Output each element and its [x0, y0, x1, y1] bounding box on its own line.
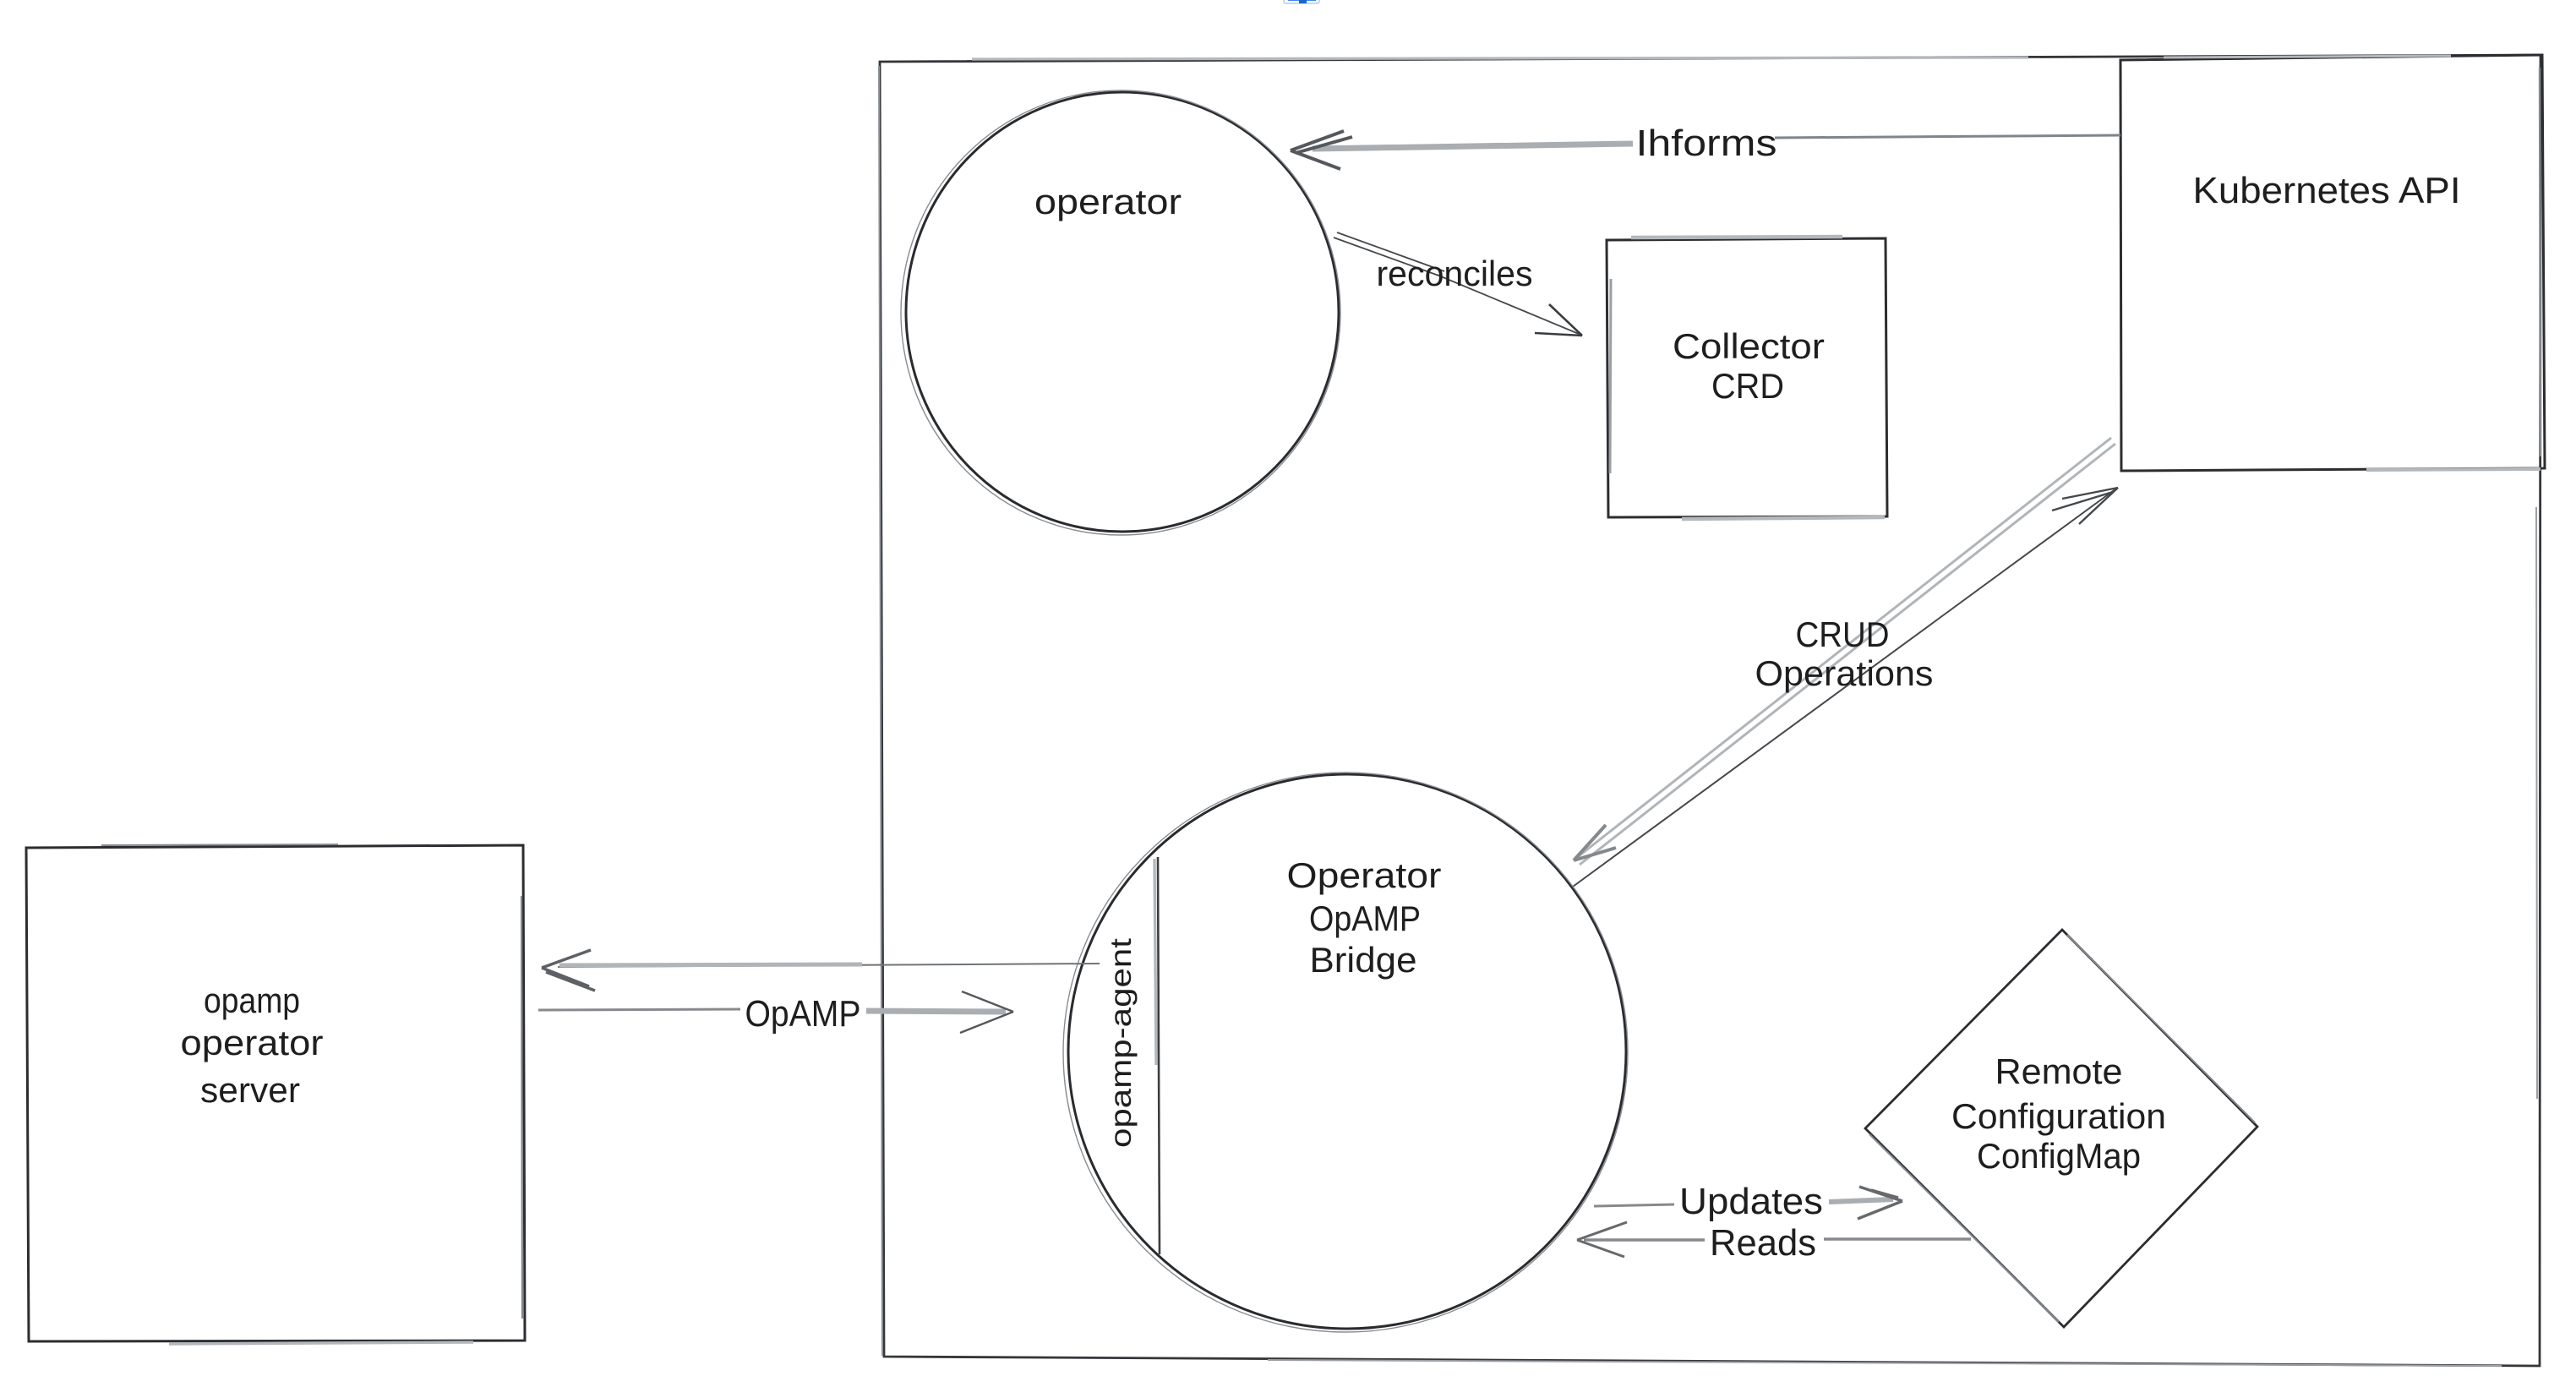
svg-text:Remote: Remote — [1995, 1051, 2123, 1091]
svg-text:Operations: Operations — [1755, 653, 1934, 693]
svg-text:Bridge: Bridge — [1310, 940, 1417, 980]
svg-text:operator: operator — [181, 1023, 324, 1062]
svg-text:Operator: Operator — [1287, 855, 1442, 895]
svg-text:CRUD: CRUD — [1796, 614, 1890, 654]
svg-text:operator: operator — [1034, 182, 1182, 221]
svg-text:ConfigMap: ConfigMap — [1977, 1136, 2141, 1176]
svg-text:reconciles: reconciles — [1377, 254, 1533, 293]
svg-text:Kubernetes API: Kubernetes API — [2193, 170, 2461, 211]
svg-text:Collector: Collector — [1673, 326, 1825, 366]
svg-text:Configuration: Configuration — [1951, 1096, 2166, 1136]
svg-text:opamp: opamp — [204, 980, 300, 1020]
svg-text:Updates: Updates — [1679, 1181, 1823, 1222]
svg-text:Reads: Reads — [1710, 1222, 1816, 1264]
svg-text:Ihforms: Ihforms — [1636, 123, 1777, 164]
svg-text:CRD: CRD — [1711, 366, 1784, 406]
svg-text:opamp-agent: opamp-agent — [1105, 938, 1138, 1148]
svg-text:OpAMP: OpAMP — [745, 993, 861, 1035]
svg-text:OpAMP: OpAMP — [1309, 898, 1421, 938]
svg-text:server: server — [200, 1070, 300, 1110]
